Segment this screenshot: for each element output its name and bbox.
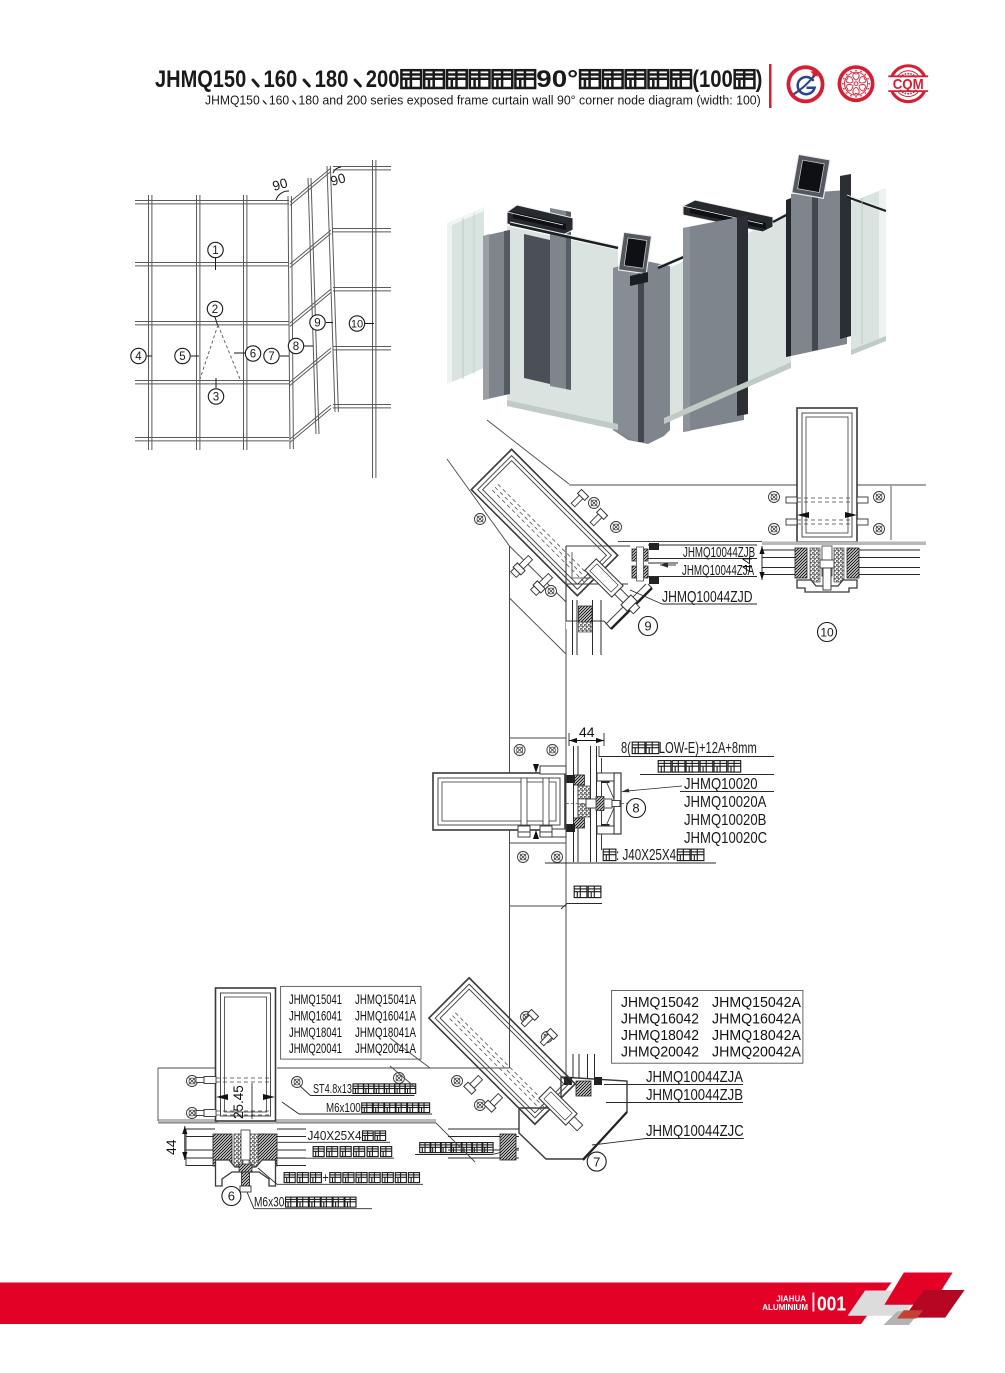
svg-text:(100: (100	[692, 66, 733, 93]
svg-text:+: +	[322, 1170, 329, 1185]
svg-text:JHMQ10044ZJB: JHMQ10044ZJB	[646, 1087, 743, 1104]
svg-text:LOW-E)+12A+8mm: LOW-E)+12A+8mm	[659, 740, 757, 757]
svg-text:10: 10	[820, 625, 834, 639]
svg-text:6: 6	[228, 1189, 235, 1204]
svg-text:JHMQ18041: JHMQ18041	[289, 1025, 342, 1040]
svg-text:JHMQ18042: JHMQ18042	[621, 1027, 699, 1044]
svg-text:90°: 90°	[536, 66, 578, 93]
svg-text:JHMQ15041: JHMQ15041	[289, 992, 342, 1007]
svg-text:160: 160	[269, 93, 289, 108]
svg-text:5: 5	[179, 351, 185, 363]
svg-text:JHMQ16041A: JHMQ16041A	[355, 1008, 416, 1023]
svg-text:JHMQ20042A: JHMQ20042A	[712, 1044, 801, 1061]
svg-text:44: 44	[579, 724, 595, 740]
svg-text:JHMQ16042A: JHMQ16042A	[712, 1011, 801, 1028]
svg-text:JHMQ150: JHMQ150	[155, 66, 246, 93]
svg-text:JHMQ18042A: JHMQ18042A	[712, 1027, 801, 1044]
svg-text:001: 001	[817, 1294, 846, 1316]
svg-text:JHMQ15042: JHMQ15042	[621, 994, 699, 1011]
svg-text:9: 9	[644, 619, 651, 634]
svg-text:8(: 8(	[621, 740, 631, 757]
svg-text:160: 160	[264, 66, 298, 93]
svg-text:JHMQ18041A: JHMQ18041A	[355, 1025, 416, 1040]
svg-text:7: 7	[268, 351, 274, 363]
svg-text:10: 10	[351, 318, 363, 330]
svg-text:JHMQ10020B: JHMQ10020B	[684, 812, 766, 829]
svg-text:6: 6	[250, 349, 256, 361]
svg-text:JHMQ10044ZJD: JHMQ10044ZJD	[662, 589, 753, 606]
svg-text:ALUMINIUM: ALUMINIUM	[762, 1303, 808, 1312]
svg-text:8: 8	[293, 341, 299, 353]
svg-text:1: 1	[212, 245, 218, 257]
svg-text:JHMQ15042A: JHMQ15042A	[712, 994, 801, 1011]
svg-text:9: 9	[314, 318, 320, 330]
svg-text:44: 44	[739, 556, 755, 572]
svg-text:M6x30: M6x30	[254, 1195, 284, 1210]
svg-text:JHMQ10044ZJA: JHMQ10044ZJA	[646, 1069, 743, 1086]
svg-text:7: 7	[593, 1154, 600, 1169]
svg-text:JHMQ16042: JHMQ16042	[621, 1011, 699, 1028]
svg-text:CQM: CQM	[893, 76, 924, 93]
svg-text:JHMQ10020C: JHMQ10020C	[684, 830, 767, 847]
svg-text:200: 200	[366, 66, 400, 93]
svg-text:JHMQ20041: JHMQ20041	[289, 1041, 342, 1056]
svg-text:4: 4	[135, 351, 142, 363]
svg-text:3: 3	[213, 392, 219, 404]
svg-text:JHMQ10020A: JHMQ10020A	[684, 794, 767, 811]
svg-text:25.45: 25.45	[231, 1085, 246, 1119]
svg-text:JHMQ150: JHMQ150	[205, 93, 260, 108]
svg-text:): )	[756, 66, 763, 93]
svg-text:JHMQ16041: JHMQ16041	[289, 1008, 342, 1023]
svg-text:180: 180	[315, 66, 349, 93]
svg-text:JHMQ15041A: JHMQ15041A	[355, 992, 416, 1007]
svg-text:2: 2	[212, 304, 218, 316]
svg-text:44: 44	[163, 1139, 179, 1155]
svg-text:180 and 200 series exposed fra: 180 and 200 series exposed frame curtain…	[298, 93, 760, 108]
svg-text:JHMQ10020: JHMQ10020	[684, 776, 758, 793]
svg-text:JHMQ10044ZJC: JHMQ10044ZJC	[646, 1123, 744, 1140]
svg-text:: J40X25X4: : J40X25X4	[616, 847, 676, 864]
svg-text:JHMQ20041A: JHMQ20041A	[355, 1041, 416, 1056]
svg-text:ST4.8x13: ST4.8x13	[313, 1081, 352, 1096]
svg-text:M6x100: M6x100	[326, 1100, 361, 1115]
svg-text:J40X25X4: J40X25X4	[308, 1128, 362, 1143]
svg-text:8: 8	[632, 801, 639, 816]
svg-text:JHMQ20042: JHMQ20042	[621, 1044, 699, 1061]
